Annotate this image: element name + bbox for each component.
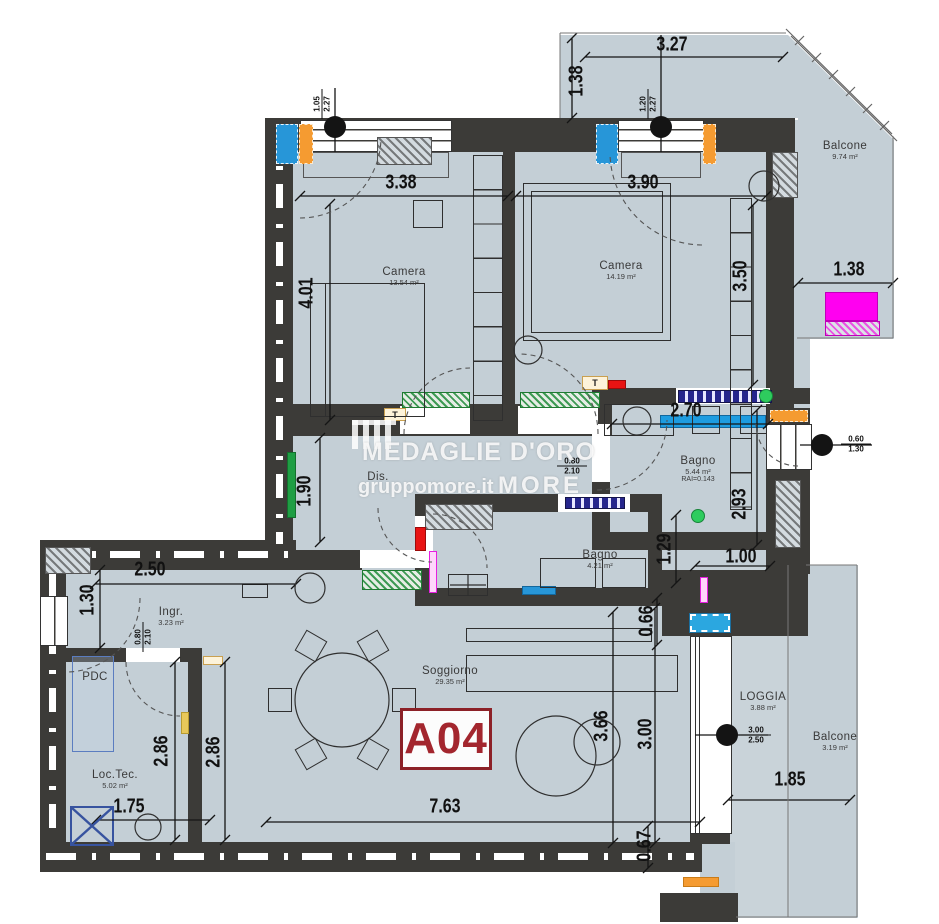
camera1-area: 13.54 m² — [382, 279, 425, 287]
door-tag-2-height: 2.10 — [144, 622, 153, 652]
camera2-name: Camera — [599, 260, 642, 273]
dim-4-01: 4.01 — [296, 277, 319, 308]
dim-2-50: 2.50 — [134, 559, 165, 582]
dim-0-67: 0.67 — [634, 830, 657, 861]
shower-hatch-bath2 — [425, 504, 493, 530]
crossed-box — [70, 806, 114, 846]
threshold-bedroom2 — [520, 392, 600, 408]
wardrobe-1 — [473, 155, 503, 421]
camera1-name: Camera — [382, 266, 425, 279]
patio-door-tag-width: 3.00 — [741, 726, 771, 736]
window-tag-2-height: 2.27 — [649, 89, 658, 119]
marker-yellow-wall — [181, 712, 189, 734]
window-tag-3-height: 1.30 — [841, 445, 871, 454]
bath1-counter — [604, 404, 674, 436]
dim-1-38-right: 1.38 — [833, 259, 864, 282]
pier-hatch-lowerleft — [45, 547, 91, 574]
pdc-name: PDC — [82, 671, 107, 684]
dim-2-93: 2.93 — [729, 488, 752, 519]
window-dis-gap — [360, 550, 420, 568]
bagno1-rai: RAI=0.143 — [680, 476, 715, 484]
balcone-top-name: Balcone — [823, 140, 867, 153]
door-tag-2: 0.80 2.10 — [134, 622, 153, 652]
soggiorno-area: 29.35 m² — [422, 678, 478, 686]
dim-1-00: 1.00 — [725, 546, 756, 569]
window-right-small — [766, 424, 812, 470]
loggia-area: 3.88 m² — [740, 704, 787, 712]
dim-3-50: 3.50 — [730, 260, 753, 291]
room-label-balcone-bottom: Balcone 3.19 m² — [813, 731, 857, 752]
bagno2-name: Bagno — [582, 549, 617, 562]
wall-dash-left-upper — [276, 126, 283, 544]
wardrobe-2 — [730, 198, 752, 510]
soggiorno-name: Soggiorno — [422, 665, 478, 678]
dim-7-63: 7.63 — [429, 796, 460, 819]
wall-southeast-2 — [662, 570, 808, 636]
room-label-ingr: Ingr. 3.23 m² — [158, 606, 183, 627]
window-tag-1-width: 1.05 — [313, 89, 323, 119]
dim-2-86-a: 2.86 — [151, 735, 174, 766]
window-tag-3-width: 0.60 — [841, 435, 871, 445]
marker-cyan-loggia-door — [690, 614, 730, 632]
room-label-loctec: Loc.Tec. 5.02 m² — [92, 769, 138, 790]
window-tag-dot-2 — [650, 116, 672, 138]
dim-3-90: 3.90 — [627, 172, 658, 195]
kitchen-counter — [466, 655, 678, 692]
room-label-camera-1: Camera 13.54 m² — [382, 266, 425, 287]
marker-orange-bottom — [683, 877, 719, 887]
room-label-pdc: PDC — [82, 671, 107, 684]
dim-1-90: 1.90 — [294, 475, 317, 506]
window-tag-dot-4 — [716, 724, 738, 746]
pier-hatch-top — [377, 137, 432, 165]
sideboard — [466, 628, 652, 642]
dim-0-66: 0.66 — [636, 605, 659, 636]
loggia-name: LOGGIA — [740, 691, 787, 704]
wall-dis-soggiorno — [292, 550, 362, 570]
bed-single — [310, 283, 425, 417]
door-gap-bedroom2 — [518, 406, 598, 434]
watermark-brand: MEDAGLIE D'ORO — [362, 438, 596, 467]
window-dis-sill — [362, 570, 422, 590]
marker-red-1 — [608, 380, 626, 389]
dim-1-38-top: 1.38 — [566, 65, 589, 96]
bagno1-area: 5.44 m² — [680, 468, 715, 476]
entrance-door-gap — [40, 596, 68, 646]
nightstand-1 — [413, 200, 443, 228]
dim-3-38: 3.38 — [385, 172, 416, 195]
balcone-bottom-name: Balcone — [813, 731, 857, 744]
camera2-area: 14.19 m² — [599, 273, 642, 281]
loctec-name: Loc.Tec. — [92, 769, 138, 782]
floor-plan: T T — [0, 0, 939, 924]
dim-1-85: 1.85 — [774, 769, 805, 792]
watermark-more-logo: MORE — [498, 472, 582, 500]
window-tag-1: 1.05 2.27 — [313, 89, 332, 119]
marker-blue-window2 — [596, 124, 618, 164]
bath2-fixture — [448, 574, 488, 596]
marker-magenta-1 — [429, 551, 437, 593]
room-label-soggiorno: Soggiorno 29.35 m² — [422, 665, 478, 686]
window-tag-3: 0.60 1.30 — [841, 435, 871, 454]
room-label-camera-2: Camera 14.19 m² — [599, 260, 642, 281]
patio-door-tag: 3.00 2.50 — [741, 726, 771, 745]
room-label-bagno-1: Bagno 5.44 m² RAI=0.143 — [680, 455, 715, 484]
marker-blue-window1 — [276, 124, 298, 164]
bed-double-inner — [531, 191, 663, 333]
window-tag-2: 1.20 2.27 — [639, 89, 658, 119]
dim-1-30: 1.30 — [77, 584, 100, 615]
door-tag-2-width: 0.80 — [134, 622, 144, 652]
bagno1-name: Bagno — [680, 455, 715, 468]
marker-orange-window1 — [299, 124, 313, 164]
loctec-area: 5.02 m² — [92, 782, 138, 790]
unit-badge: A04 — [400, 708, 492, 770]
bath1-bidet — [740, 406, 767, 434]
pier-hatch-right — [775, 480, 801, 548]
marker-green-dot-1 — [759, 389, 773, 403]
dim-3-27: 3.27 — [656, 34, 687, 57]
balcone-bottom-area: 3.19 m² — [813, 744, 857, 752]
chair — [268, 688, 292, 712]
window-tag-dot-1 — [324, 116, 346, 138]
window-tag-dot-3 — [811, 434, 833, 456]
watermark-site: gruppomore.it — [358, 476, 494, 499]
marker-orange-right — [770, 410, 808, 422]
marker-magenta-hatch-balcony — [825, 321, 880, 336]
window-tag-2-width: 1.20 — [639, 89, 649, 119]
wall-bottom-right-chunk — [660, 893, 738, 922]
wall-between-bedrooms — [503, 152, 515, 416]
marker-red-2 — [415, 527, 426, 551]
pier-hatch-topright — [772, 152, 798, 198]
dis-cabinet — [242, 584, 268, 598]
room-label-balcone-top: Balcone 9.74 m² — [823, 140, 867, 161]
dim-1-75: 1.75 — [113, 796, 144, 819]
marker-magenta-2 — [700, 577, 708, 603]
ingr-area: 3.23 m² — [158, 619, 183, 627]
marker-tan-entry — [203, 656, 223, 665]
balcone-top-area: 9.74 m² — [823, 153, 867, 161]
thermostat-label-1: T — [592, 378, 598, 388]
wall-dash-bottom — [46, 853, 694, 860]
ingr-name: Ingr. — [158, 606, 183, 619]
dim-2-70: 2.70 — [670, 400, 701, 423]
dim-3-00: 3.00 — [635, 718, 658, 749]
wall-loctec-right — [188, 648, 202, 844]
marker-magenta-balcony — [825, 292, 878, 321]
thermostat-box-1: T — [582, 376, 608, 390]
patio-door-tag-height: 2.50 — [741, 736, 771, 745]
window-tag-1-height: 2.27 — [323, 89, 332, 119]
bagno2-area: 4.21 m² — [582, 562, 617, 570]
dim-3-66: 3.66 — [591, 710, 614, 741]
room-label-loggia: LOGGIA 3.88 m² — [740, 691, 787, 712]
dim-1-29: 1.29 — [654, 533, 677, 564]
dim-2-86-b: 2.86 — [203, 736, 226, 767]
room-label-bagno-2: Bagno 4.21 m² — [582, 549, 617, 570]
marker-orange-window2 — [703, 124, 716, 164]
marker-green-dot-2 — [691, 509, 705, 523]
